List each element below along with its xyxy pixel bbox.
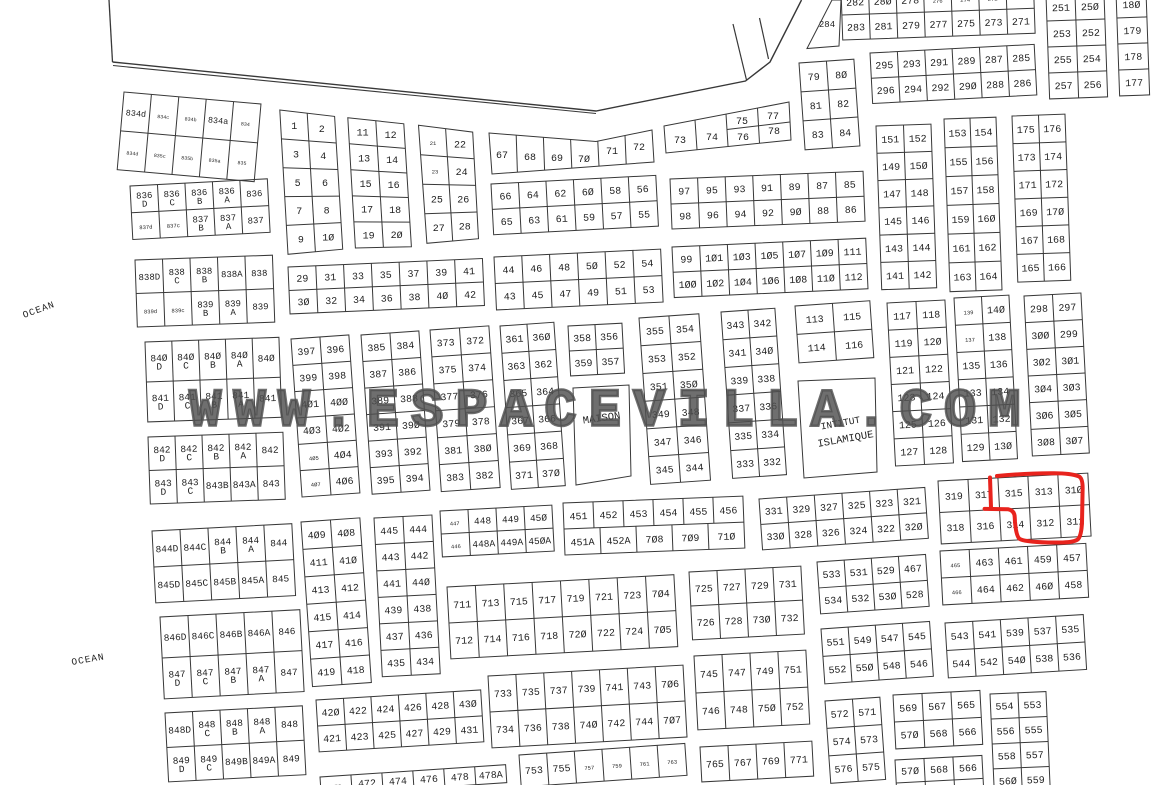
- svg-text:375: 375: [438, 365, 457, 377]
- svg-text:1Ø7: 1Ø7: [788, 249, 807, 262]
- svg-text:759: 759: [612, 762, 622, 770]
- svg-text:466: 466: [952, 589, 962, 597]
- svg-text:252: 252: [1082, 29, 1100, 41]
- svg-text:15: 15: [360, 180, 372, 191]
- svg-text:567: 567: [928, 702, 947, 714]
- svg-text:354: 354: [676, 325, 695, 337]
- svg-text:837: 837: [247, 216, 264, 227]
- svg-text:732: 732: [780, 614, 799, 626]
- svg-text:254: 254: [1083, 55, 1101, 67]
- svg-text:3: 3: [293, 151, 299, 162]
- svg-text:568: 568: [929, 729, 948, 741]
- svg-text:341: 341: [728, 349, 747, 361]
- svg-text:292: 292: [931, 83, 950, 95]
- svg-text:326: 326: [822, 528, 841, 540]
- svg-text:343: 343: [726, 321, 745, 333]
- svg-text:44: 44: [502, 266, 515, 278]
- svg-text:25: 25: [431, 195, 443, 206]
- svg-text:297: 297: [1058, 303, 1077, 315]
- svg-text:752: 752: [786, 702, 805, 714]
- svg-text:749: 749: [756, 667, 775, 679]
- svg-text:8: 8: [324, 206, 330, 217]
- svg-text:445: 445: [380, 527, 399, 539]
- svg-text:839c: 839c: [171, 307, 184, 314]
- svg-text:565: 565: [957, 701, 976, 713]
- svg-text:153: 153: [948, 129, 966, 141]
- svg-text:285: 285: [1012, 54, 1031, 66]
- svg-text:363: 363: [507, 362, 526, 374]
- svg-text:763: 763: [667, 758, 677, 766]
- svg-text:33Ø: 33Ø: [766, 531, 785, 544]
- svg-text:382: 382: [475, 471, 494, 483]
- svg-text:372: 372: [466, 336, 485, 348]
- svg-text:325: 325: [847, 501, 866, 513]
- svg-text:451A: 451A: [570, 538, 594, 550]
- svg-text:13: 13: [358, 154, 370, 165]
- svg-text:755: 755: [552, 764, 571, 776]
- svg-text:116: 116: [845, 341, 864, 353]
- svg-text:45ØA: 45ØA: [528, 535, 552, 547]
- svg-text:76: 76: [737, 133, 749, 144]
- svg-text:51: 51: [615, 287, 628, 299]
- svg-text:715: 715: [510, 597, 529, 609]
- svg-text:273: 273: [984, 18, 1002, 30]
- svg-text:393: 393: [375, 449, 394, 461]
- svg-text:834b: 834b: [184, 116, 196, 123]
- svg-text:846C: 846C: [191, 630, 215, 642]
- svg-text:253: 253: [1053, 30, 1071, 42]
- svg-text:298: 298: [1030, 305, 1049, 317]
- svg-text:736: 736: [524, 724, 543, 736]
- svg-text:48: 48: [558, 263, 571, 275]
- svg-text:34Ø: 34Ø: [755, 346, 774, 359]
- svg-text:1Ø4: 1Ø4: [734, 277, 753, 290]
- svg-text:43Ø: 43Ø: [458, 699, 477, 712]
- svg-text:256: 256: [1084, 81, 1102, 93]
- svg-text:744: 744: [635, 717, 654, 729]
- svg-text:143: 143: [885, 244, 903, 256]
- svg-text:85: 85: [844, 181, 856, 192]
- svg-text:138: 138: [988, 333, 1007, 345]
- svg-text:839: 839: [252, 302, 269, 313]
- svg-text:73Ø: 73Ø: [752, 614, 771, 627]
- svg-text:5Ø: 5Ø: [586, 261, 599, 274]
- svg-text:362: 362: [534, 360, 553, 372]
- svg-text:118: 118: [922, 310, 941, 322]
- svg-text:78: 78: [768, 127, 780, 138]
- svg-text:848: 848: [281, 719, 299, 731]
- svg-text:29Ø: 29Ø: [959, 81, 978, 94]
- svg-text:835a: 835a: [208, 158, 220, 165]
- svg-text:38Ø: 38Ø: [473, 443, 492, 456]
- svg-text:765: 765: [706, 760, 725, 772]
- svg-text:B: B: [213, 451, 219, 462]
- svg-text:12Ø: 12Ø: [923, 337, 942, 350]
- svg-text:95: 95: [706, 186, 718, 197]
- svg-text:421: 421: [323, 734, 342, 746]
- svg-text:11: 11: [357, 129, 369, 140]
- svg-text:7: 7: [296, 207, 302, 218]
- svg-text:154: 154: [974, 128, 992, 140]
- svg-text:532: 532: [851, 594, 870, 606]
- svg-text:42: 42: [464, 291, 476, 303]
- svg-text:769: 769: [762, 757, 781, 769]
- svg-text:14: 14: [386, 156, 398, 167]
- svg-text:426: 426: [404, 703, 423, 715]
- svg-text:117: 117: [893, 312, 912, 324]
- svg-text:835c: 835c: [154, 153, 166, 160]
- svg-text:C: C: [183, 360, 189, 371]
- svg-text:54Ø: 54Ø: [1007, 655, 1026, 668]
- svg-text:171: 171: [1019, 181, 1037, 193]
- svg-text:7Ø6: 7Ø6: [661, 679, 680, 692]
- svg-text:359: 359: [574, 359, 593, 371]
- svg-text:172: 172: [1045, 180, 1063, 192]
- svg-text:434: 434: [416, 657, 435, 669]
- svg-text:552: 552: [828, 665, 847, 677]
- svg-text:757: 757: [584, 764, 594, 772]
- svg-text:324: 324: [849, 526, 868, 538]
- svg-text:18Ø: 18Ø: [1122, 0, 1140, 12]
- svg-text:437: 437: [386, 632, 405, 644]
- svg-text:139: 139: [963, 309, 973, 317]
- svg-text:69: 69: [551, 154, 563, 165]
- svg-text:6: 6: [322, 179, 328, 190]
- svg-text:B: B: [232, 726, 239, 737]
- svg-text:566: 566: [959, 764, 978, 776]
- svg-text:87: 87: [816, 182, 828, 193]
- svg-text:462: 462: [1006, 584, 1025, 596]
- svg-text:384: 384: [396, 341, 415, 353]
- svg-text:531: 531: [849, 568, 868, 580]
- svg-text:137: 137: [965, 336, 975, 344]
- svg-text:98: 98: [679, 212, 691, 223]
- svg-text:374: 374: [468, 363, 487, 375]
- svg-text:3Ø4: 3Ø4: [1034, 384, 1053, 397]
- svg-text:849A: 849A: [252, 755, 276, 767]
- svg-text:448: 448: [474, 515, 492, 527]
- svg-text:142: 142: [913, 271, 931, 283]
- svg-text:25Ø: 25Ø: [1081, 2, 1099, 15]
- svg-text:723: 723: [623, 591, 642, 603]
- svg-text:257: 257: [1055, 82, 1073, 94]
- svg-text:119: 119: [894, 339, 913, 351]
- svg-text:111: 111: [843, 248, 861, 260]
- svg-text:79: 79: [807, 73, 820, 85]
- svg-text:144: 144: [912, 244, 930, 256]
- svg-text:431: 431: [460, 726, 479, 738]
- svg-text:56Ø: 56Ø: [999, 776, 1018, 785]
- svg-text:842: 842: [261, 445, 279, 457]
- svg-text:255: 255: [1054, 56, 1072, 68]
- svg-text:836: 836: [246, 189, 263, 200]
- svg-text:96: 96: [707, 211, 719, 222]
- svg-text:843B: 843B: [206, 480, 229, 492]
- svg-text:838: 838: [251, 269, 268, 280]
- svg-text:46Ø: 46Ø: [1035, 581, 1054, 594]
- svg-text:449A: 449A: [500, 537, 524, 549]
- svg-text:121: 121: [896, 366, 915, 378]
- svg-text:77: 77: [767, 112, 779, 123]
- svg-text:345: 345: [655, 465, 674, 477]
- svg-text:D: D: [179, 764, 186, 775]
- svg-text:B: B: [202, 275, 208, 285]
- svg-text:429: 429: [433, 727, 452, 739]
- svg-text:737: 737: [549, 686, 568, 698]
- svg-text:15Ø: 15Ø: [909, 161, 927, 174]
- svg-text:162: 162: [978, 243, 996, 255]
- svg-text:392: 392: [404, 447, 423, 459]
- svg-text:344: 344: [685, 463, 704, 475]
- svg-text:846: 846: [278, 626, 296, 638]
- svg-text:451: 451: [569, 512, 587, 524]
- svg-text:168: 168: [1047, 235, 1065, 247]
- svg-text:536: 536: [1063, 653, 1082, 665]
- svg-text:427: 427: [405, 729, 424, 741]
- svg-text:18: 18: [389, 206, 401, 217]
- svg-text:251: 251: [1052, 4, 1070, 16]
- svg-text:D: D: [159, 453, 165, 464]
- svg-text:283: 283: [847, 23, 865, 35]
- svg-text:145: 145: [884, 217, 902, 229]
- svg-text:82: 82: [837, 100, 850, 112]
- svg-text:718: 718: [540, 632, 559, 644]
- svg-text:293: 293: [903, 60, 922, 72]
- svg-text:3Ø: 3Ø: [297, 297, 310, 310]
- svg-text:113: 113: [805, 315, 824, 327]
- svg-text:428: 428: [431, 701, 450, 713]
- svg-text:4Ø7: 4Ø7: [311, 481, 321, 489]
- svg-text:724: 724: [625, 627, 644, 639]
- svg-text:761: 761: [639, 760, 650, 768]
- svg-text:29: 29: [296, 274, 308, 286]
- svg-text:559: 559: [1027, 776, 1045, 785]
- svg-text:81: 81: [810, 102, 823, 114]
- svg-text:843A: 843A: [233, 479, 256, 491]
- svg-text:A: A: [258, 673, 265, 684]
- svg-text:533: 533: [822, 570, 841, 582]
- svg-text:D: D: [142, 200, 148, 210]
- svg-text:151: 151: [881, 135, 899, 147]
- svg-text:356: 356: [600, 332, 619, 344]
- svg-text:284: 284: [819, 20, 835, 30]
- svg-text:16: 16: [388, 181, 400, 192]
- svg-text:573: 573: [860, 735, 879, 747]
- svg-text:717: 717: [538, 596, 557, 608]
- svg-text:546: 546: [910, 659, 929, 671]
- svg-text:17: 17: [361, 206, 373, 217]
- svg-text:835b: 835b: [181, 155, 193, 162]
- svg-text:178: 178: [1124, 53, 1142, 65]
- svg-text:83: 83: [812, 130, 825, 142]
- svg-text:7Ø9: 7Ø9: [681, 533, 699, 546]
- svg-text:7Ø8: 7Ø8: [645, 534, 663, 547]
- svg-text:291: 291: [930, 58, 949, 70]
- svg-text:97: 97: [678, 187, 690, 198]
- svg-text:838A: 838A: [221, 269, 244, 280]
- svg-text:88: 88: [817, 207, 829, 218]
- svg-text:27: 27: [433, 224, 445, 235]
- svg-text:112: 112: [844, 273, 862, 285]
- svg-text:722: 722: [597, 628, 616, 640]
- svg-text:91: 91: [761, 184, 773, 195]
- svg-text:7Ø7: 7Ø7: [663, 715, 682, 728]
- svg-text:156: 156: [975, 157, 993, 169]
- svg-text:12: 12: [385, 131, 397, 142]
- svg-text:282: 282: [846, 0, 864, 10]
- svg-text:93: 93: [733, 185, 745, 196]
- svg-text:1Ø5: 1Ø5: [760, 250, 779, 263]
- svg-text:422: 422: [349, 706, 368, 718]
- svg-text:53Ø: 53Ø: [878, 591, 897, 604]
- svg-text:458: 458: [1064, 581, 1083, 593]
- svg-text:727: 727: [723, 583, 742, 595]
- svg-text:52: 52: [613, 261, 626, 273]
- svg-text:476: 476: [420, 775, 439, 785]
- svg-text:177: 177: [1125, 79, 1143, 91]
- svg-text:A: A: [230, 308, 236, 318]
- svg-text:478A: 478A: [479, 770, 504, 783]
- svg-text:D: D: [158, 401, 164, 412]
- svg-text:837c: 837c: [167, 222, 181, 230]
- svg-text:33: 33: [352, 272, 364, 284]
- svg-text:316: 316: [976, 522, 995, 534]
- svg-text:A: A: [240, 450, 246, 461]
- svg-text:A: A: [248, 544, 255, 555]
- svg-text:385: 385: [367, 343, 386, 355]
- svg-text:383: 383: [446, 473, 465, 485]
- svg-text:472: 472: [358, 779, 377, 785]
- svg-text:318: 318: [946, 523, 965, 535]
- svg-text:834c: 834c: [157, 114, 169, 121]
- svg-text:534: 534: [824, 596, 843, 608]
- svg-text:16Ø: 16Ø: [977, 214, 995, 227]
- svg-text:731: 731: [779, 580, 798, 592]
- svg-text:1Ø8: 1Ø8: [789, 274, 808, 287]
- svg-text:C: C: [204, 728, 211, 739]
- svg-text:2Ø: 2Ø: [391, 230, 403, 242]
- svg-text:713: 713: [481, 599, 500, 611]
- svg-text:554: 554: [995, 702, 1013, 714]
- svg-text:159: 159: [951, 215, 969, 227]
- svg-text:135: 135: [962, 361, 981, 373]
- svg-text:296: 296: [876, 86, 895, 98]
- svg-text:31: 31: [324, 273, 336, 285]
- svg-text:158: 158: [976, 186, 994, 198]
- svg-text:845A: 845A: [241, 575, 265, 587]
- svg-text:1Ø6: 1Ø6: [761, 276, 780, 289]
- svg-text:728: 728: [724, 617, 743, 629]
- svg-text:C: C: [206, 762, 213, 773]
- svg-text:43: 43: [504, 292, 517, 304]
- svg-text:278: 278: [901, 0, 919, 8]
- svg-text:423: 423: [350, 732, 369, 744]
- svg-text:7Ø: 7Ø: [578, 154, 590, 166]
- svg-text:146: 146: [911, 216, 929, 228]
- svg-text:712: 712: [455, 636, 474, 648]
- svg-text:4: 4: [320, 152, 326, 163]
- svg-text:31Ø: 31Ø: [1064, 485, 1083, 498]
- svg-text:49: 49: [587, 288, 600, 300]
- svg-text:B: B: [230, 675, 237, 686]
- svg-text:47: 47: [559, 290, 572, 302]
- svg-text:274: 274: [960, 0, 971, 4]
- svg-text:1ØØ: 1ØØ: [678, 279, 697, 292]
- svg-text:839d: 839d: [144, 308, 157, 315]
- svg-text:547: 547: [881, 634, 900, 646]
- svg-text:68: 68: [524, 153, 536, 164]
- svg-text:574: 574: [832, 737, 851, 749]
- svg-text:2: 2: [319, 125, 325, 136]
- svg-text:846B: 846B: [219, 629, 243, 641]
- svg-text:WWW.ESPACEVILLA.COM: WWW.ESPACEVILLA.COM: [189, 382, 1033, 443]
- svg-text:94: 94: [734, 210, 746, 221]
- svg-text:4Ø: 4Ø: [436, 291, 449, 304]
- svg-text:542: 542: [980, 658, 999, 670]
- svg-text:464: 464: [977, 585, 996, 597]
- svg-text:4Ø5: 4Ø5: [309, 455, 319, 463]
- svg-text:328: 328: [794, 530, 813, 542]
- svg-text:435: 435: [387, 659, 406, 671]
- svg-text:455: 455: [689, 507, 707, 519]
- svg-text:844D: 844D: [155, 543, 179, 555]
- svg-text:845B: 845B: [213, 576, 237, 588]
- svg-text:4Ø6: 4Ø6: [335, 476, 354, 489]
- svg-text:4Ø8: 4Ø8: [337, 528, 356, 541]
- svg-text:358: 358: [573, 334, 592, 346]
- svg-text:322: 322: [877, 524, 896, 536]
- svg-text:461: 461: [1004, 557, 1023, 569]
- svg-text:327: 327: [820, 503, 839, 515]
- svg-text:449: 449: [502, 514, 520, 526]
- svg-text:729: 729: [751, 581, 770, 593]
- svg-text:148: 148: [910, 189, 928, 201]
- svg-text:45: 45: [531, 291, 544, 303]
- svg-text:714: 714: [483, 635, 502, 647]
- svg-text:13Ø: 13Ø: [994, 441, 1013, 454]
- svg-text:3Ø7: 3Ø7: [1065, 435, 1084, 448]
- svg-text:3Ø6: 3Ø6: [1035, 410, 1054, 423]
- svg-text:127: 127: [900, 448, 919, 460]
- svg-text:299: 299: [1060, 330, 1079, 342]
- svg-text:57Ø: 57Ø: [901, 766, 920, 779]
- svg-text:99: 99: [680, 255, 693, 267]
- svg-text:167: 167: [1020, 236, 1038, 248]
- svg-text:834: 834: [241, 121, 251, 128]
- svg-text:566: 566: [958, 728, 977, 740]
- svg-text:23: 23: [432, 169, 439, 176]
- svg-text:58: 58: [609, 186, 622, 198]
- svg-text:539: 539: [1006, 628, 1025, 640]
- svg-text:838D: 838D: [138, 272, 160, 283]
- svg-text:176: 176: [1043, 125, 1061, 137]
- svg-text:114: 114: [807, 343, 826, 355]
- svg-text:147: 147: [883, 190, 901, 202]
- svg-text:395: 395: [376, 476, 395, 488]
- svg-text:92: 92: [762, 209, 774, 220]
- svg-text:D: D: [174, 678, 181, 689]
- svg-text:1Ø3: 1Ø3: [733, 252, 752, 265]
- svg-text:538: 538: [1035, 654, 1054, 666]
- svg-text:467: 467: [904, 564, 923, 576]
- svg-text:B: B: [203, 309, 209, 319]
- svg-text:353: 353: [648, 354, 667, 366]
- svg-text:73: 73: [674, 136, 686, 147]
- svg-text:443: 443: [381, 553, 400, 565]
- svg-text:415: 415: [313, 613, 332, 625]
- svg-text:751: 751: [784, 665, 803, 677]
- svg-text:89: 89: [788, 183, 800, 194]
